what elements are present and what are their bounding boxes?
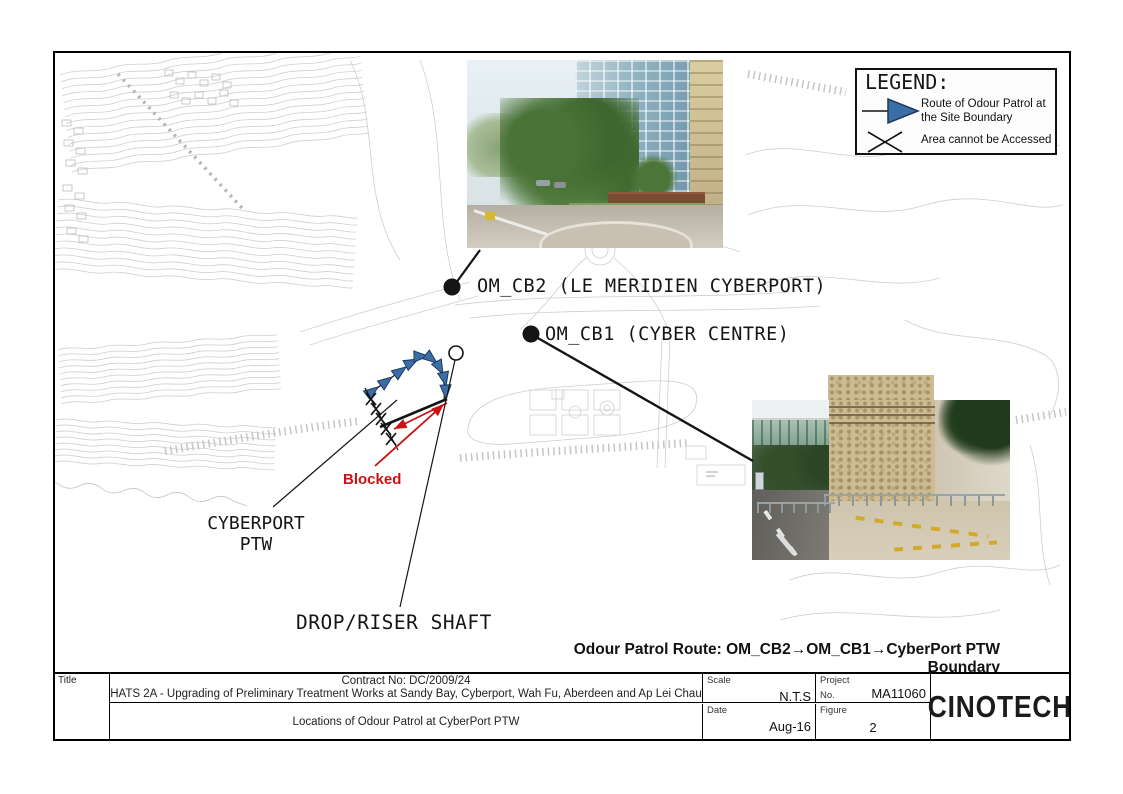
photo-cyber-centre-street [752, 400, 1010, 560]
om-cb2-label: OM_CB2 (LE MERIDIEN CYBERPORT) [477, 276, 826, 297]
om-cb1-label: OM_CB1 (CYBER CENTRE) [545, 324, 789, 345]
om-cb1-leader-line [536, 337, 753, 461]
shaft-marker [449, 346, 463, 360]
title-label-cell: Title [55, 674, 110, 739]
project-no-value: MA11060 [871, 686, 926, 701]
cinotech-logo: CINOTECH [928, 689, 1072, 725]
title-main-cell: Contract No: DC/2009/24 HATS 2A - Upgrad… [110, 674, 702, 739]
figure-cell: Figure 2 [815, 704, 930, 739]
figure-number: 2 [820, 720, 926, 735]
contract-cell: Contract No: DC/2009/24 HATS 2A - Upgrad… [110, 674, 702, 703]
scale-label: Scale [707, 675, 811, 686]
drop-riser-shaft-label: DROP/RISER SHAFT [296, 611, 492, 634]
cyberport-ptw-label: CYBERPORT PTW [197, 513, 315, 555]
contract-title: HATS 2A - Upgrading of Preliminary Treat… [110, 688, 702, 702]
legend-route-label: Route of Odour Patrol at the Site Bounda… [921, 98, 1053, 125]
date-label: Date [707, 705, 811, 716]
photo-stone-bands [829, 406, 935, 425]
date-value: Aug-16 [707, 719, 811, 734]
scale-value: N.T.S [707, 689, 811, 704]
photo-yellow-object [485, 212, 495, 220]
route-arrow-icon [861, 96, 921, 126]
photo-railing [824, 494, 1005, 506]
blocked-arrows [375, 400, 447, 466]
legend-blocked-label: Area cannot be Accessed [921, 134, 1053, 148]
legend-title: LEGEND: [865, 70, 949, 94]
blocked-label: Blocked [343, 471, 401, 488]
drawing-title-cell: Locations of Odour Patrol at CyberPort P… [110, 704, 702, 739]
no-access-x-icon [865, 130, 907, 154]
title-block: Title Contract No: DC/2009/24 HATS 2A - … [53, 672, 1071, 741]
route-arrows [364, 350, 452, 400]
project-label: Project [820, 675, 926, 686]
contract-no: Contract No: DC/2009/24 [110, 675, 702, 689]
om-cb2-marker [444, 279, 461, 296]
photo-railing [757, 502, 834, 513]
scale-cell: Scale N.T.S [702, 674, 815, 703]
photo-car [554, 182, 566, 188]
figure-label: Figure [820, 705, 926, 716]
site-boundary-line [380, 399, 447, 427]
project-cell: Project No. MA11060 [815, 674, 930, 703]
legend-box: LEGEND: Route of Odour Patrol at the Sit… [855, 68, 1057, 155]
photo-pavement [829, 501, 1010, 560]
photo-sign [755, 472, 764, 490]
drawing-title: Locations of Odour Patrol at CyberPort P… [293, 716, 520, 728]
photo-le-meridien-cyberport [467, 60, 723, 248]
photo-stone-column [690, 60, 723, 207]
photo-car [536, 180, 550, 186]
company-logo-cell: CINOTECH [930, 674, 1069, 739]
figure-page: LEGEND: Route of Odour Patrol at the Sit… [0, 0, 1123, 794]
route-line [369, 356, 445, 400]
shaft-leader-line [400, 360, 455, 607]
cyberport-ptw-leader-line [273, 400, 397, 507]
date-cell: Date Aug-16 [702, 704, 815, 739]
photo-stone-column-top [828, 375, 934, 403]
photo-tree [938, 400, 1010, 470]
inaccessible-x-marks [365, 388, 398, 450]
project-no-label: No. [820, 690, 835, 701]
om-cb1-marker [523, 326, 540, 343]
